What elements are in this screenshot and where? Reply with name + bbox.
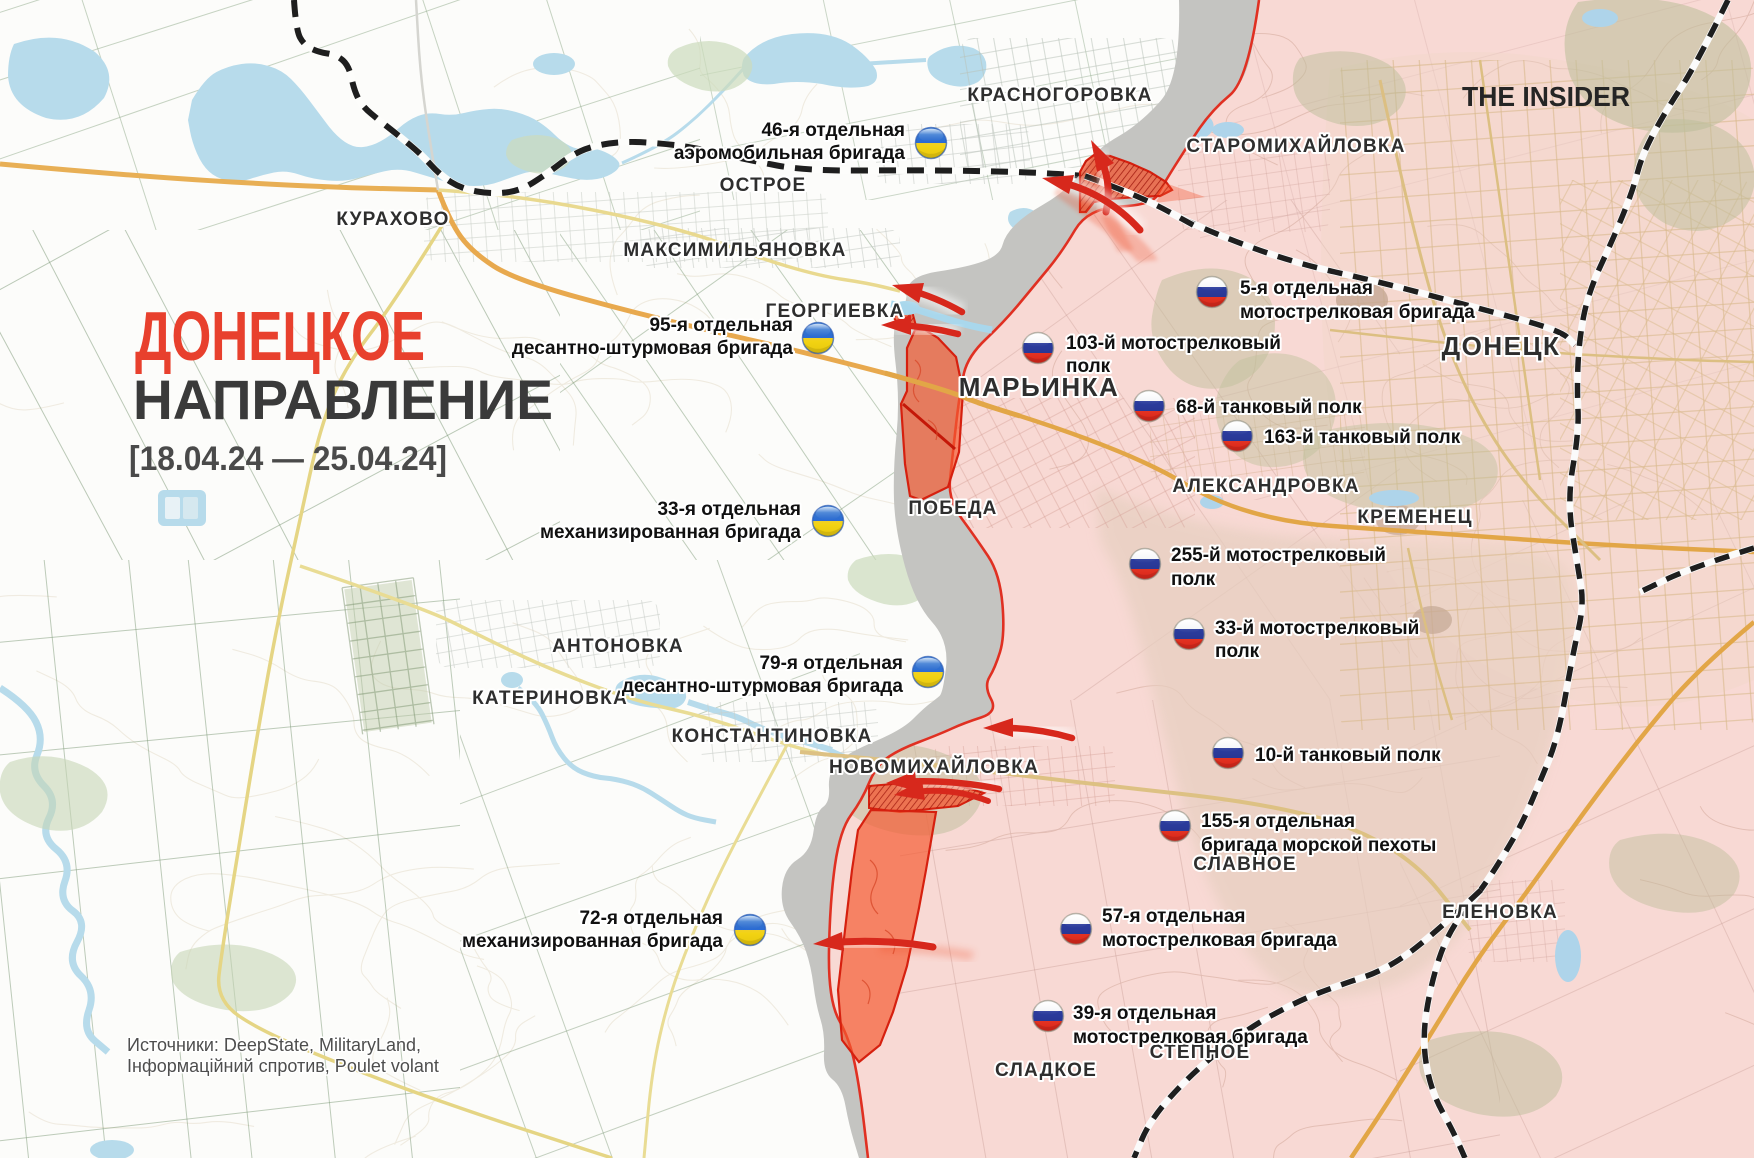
- svg-text:полк: полк: [1066, 356, 1111, 377]
- svg-text:КРЕМЕНЕЦ: КРЕМЕНЕЦ: [1357, 507, 1472, 528]
- svg-text:СЛАВНОЕ: СЛАВНОЕ: [1193, 854, 1297, 875]
- svg-text:155-я отдельная: 155-я отдельная: [1201, 811, 1355, 832]
- svg-text:полк: полк: [1171, 569, 1216, 590]
- svg-text:72-я отдельная: 72-я отдельная: [579, 908, 723, 929]
- svg-text:КОНСТАНТИНОВКА: КОНСТАНТИНОВКА: [672, 726, 873, 747]
- svg-text:THE INSIDER: THE INSIDER: [1462, 81, 1630, 112]
- svg-text:ЕЛЕНОВКА: ЕЛЕНОВКА: [1442, 902, 1558, 923]
- svg-text:163-й танковый полк: 163-й танковый полк: [1264, 427, 1461, 448]
- svg-text:79-я отдельная: 79-я отдельная: [759, 653, 903, 674]
- svg-text:255-й мотострелковый: 255-й мотострелковый: [1171, 545, 1386, 566]
- svg-text:КРАСНОГОРОВКА: КРАСНОГОРОВКА: [967, 85, 1152, 106]
- svg-text:мотострелковая бригада: мотострелковая бригада: [1102, 930, 1337, 951]
- svg-text:95-я отдельная: 95-я отдельная: [649, 315, 793, 336]
- svg-text:десантно-штурмовая бригада: десантно-штурмовая бригада: [622, 676, 904, 697]
- svg-text:39-я отдельная: 39-я отдельная: [1073, 1003, 1217, 1024]
- svg-text:АНТОНОВКА: АНТОНОВКА: [552, 636, 684, 657]
- svg-text:5-я отдельная: 5-я отдельная: [1240, 278, 1373, 299]
- svg-text:103-й мотострелковый: 103-й мотострелковый: [1066, 333, 1281, 354]
- svg-text:33-я отдельная: 33-я отдельная: [657, 499, 801, 520]
- svg-text:57-я отдельная: 57-я отдельная: [1102, 906, 1246, 927]
- svg-text:АЛЕКСАНДРОВКА: АЛЕКСАНДРОВКА: [1172, 476, 1359, 497]
- svg-text:бригада морской пехоты: бригада морской пехоты: [1201, 835, 1436, 856]
- svg-text:НОВОМИХАЙЛОВКА: НОВОМИХАЙЛОВКА: [829, 756, 1039, 778]
- svg-text:механизированная бригада: механизированная бригада: [540, 522, 801, 543]
- svg-text:механизированная бригада: механизированная бригада: [462, 931, 723, 952]
- svg-text:ПОБЕДА: ПОБЕДА: [908, 498, 997, 519]
- svg-text:Источники: DeepState, Military: Источники: DeepState, MilitaryLand,: [127, 1035, 421, 1055]
- svg-text:МАКСИМИЛЬЯНОВКА: МАКСИМИЛЬЯНОВКА: [623, 240, 846, 261]
- svg-text:КАТЕРИНОВКА: КАТЕРИНОВКА: [472, 688, 628, 709]
- svg-text:46-я отдельная: 46-я отдельная: [761, 120, 905, 141]
- svg-text:Інформаційний спротив, Poulet: Інформаційний спротив, Poulet volant: [127, 1056, 439, 1076]
- svg-text:СЛАДКОЕ: СЛАДКОЕ: [995, 1060, 1097, 1081]
- svg-text:ДОНЕЦК: ДОНЕЦК: [1442, 331, 1561, 361]
- svg-text:ДОНЕЦКОЕ: ДОНЕЦКОЕ: [135, 297, 425, 375]
- svg-text:10-й танковый полк: 10-й танковый полк: [1255, 745, 1441, 766]
- svg-text:КУРАХОВО: КУРАХОВО: [336, 209, 449, 230]
- svg-text:мотострелковая бригада: мотострелковая бригада: [1073, 1027, 1308, 1048]
- svg-text:СТАРОМИХАЙЛОВКА: СТАРОМИХАЙЛОВКА: [1186, 135, 1405, 157]
- svg-text:68-й танковый полк: 68-й танковый полк: [1176, 397, 1362, 418]
- svg-text:десантно-штурмовая бригада: десантно-штурмовая бригада: [512, 338, 794, 359]
- svg-text:[18.04.24 — 25.04.24]: [18.04.24 — 25.04.24]: [129, 440, 447, 478]
- svg-text:33-й мотострелковый: 33-й мотострелковый: [1215, 618, 1419, 639]
- svg-text:аэромобильная бригада: аэромобильная бригада: [674, 143, 906, 164]
- svg-text:мотострелковая бригада: мотострелковая бригада: [1240, 302, 1475, 323]
- svg-text:НАПРАВЛЕНИЕ: НАПРАВЛЕНИЕ: [133, 368, 553, 431]
- svg-text:ОСТРОЕ: ОСТРОЕ: [720, 175, 807, 196]
- svg-text:полк: полк: [1215, 641, 1260, 662]
